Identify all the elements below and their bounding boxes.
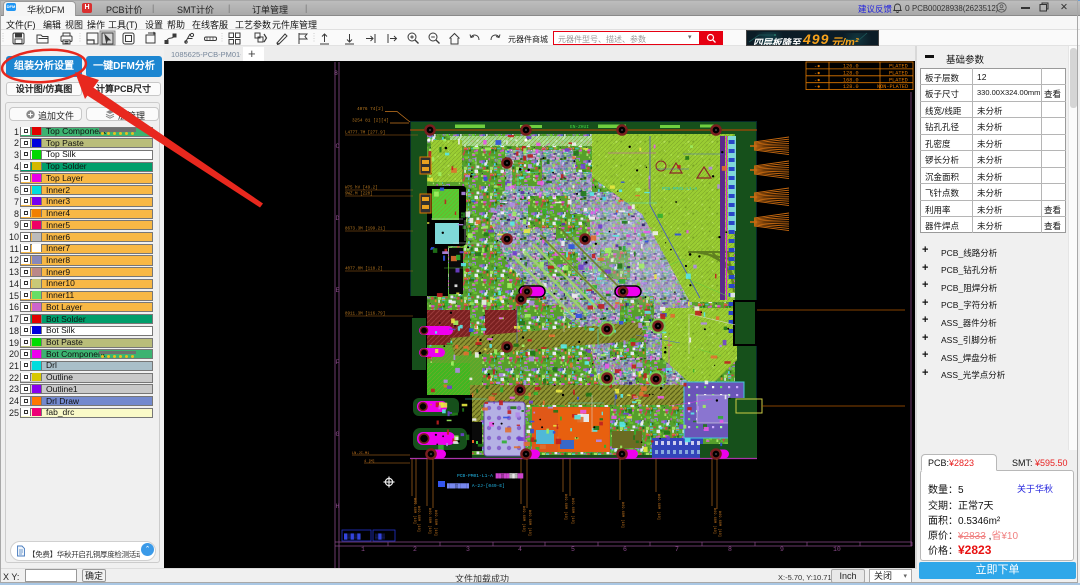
svg-text:EN-ZHUI: EN-ZHUI — [570, 124, 589, 130]
svg-text:7: 7 — [675, 546, 679, 553]
svg-text:W49.60M [10]: W49.60M [10] — [712, 508, 717, 534]
svg-text:4076 74[2]: 4076 74[2] — [357, 107, 383, 112]
svg-text:W49.60M [10]: W49.60M [10] — [563, 494, 568, 520]
svg-text:-●: -● — [814, 77, 820, 83]
svg-text:3: 3 — [466, 546, 470, 553]
svg-text:███▓████ A-2J-[049-E]: ███▓████ A-2J-[049-E] — [447, 483, 505, 489]
svg-text:8: 8 — [334, 70, 338, 77]
svg-text:126.0: 126.0 — [843, 64, 859, 70]
svg-text:-●: -● — [814, 70, 820, 76]
svg-text:E: E — [336, 287, 340, 294]
svg-text:2: 2 — [413, 546, 417, 553]
svg-text:1: 1 — [361, 546, 365, 553]
svg-text:W49.60M [10]: W49.60M [10] — [427, 508, 432, 534]
svg-text:▒█▒: ▒█▒ — [375, 533, 386, 540]
svg-text:8: 8 — [728, 546, 732, 553]
svg-text:5: 5 — [571, 546, 575, 553]
svg-text:PLATED: PLATED — [889, 77, 908, 83]
svg-text:9: 9 — [780, 546, 784, 553]
svg-text:C: C — [336, 143, 340, 150]
svg-text:10: 10 — [833, 546, 841, 553]
svg-text:128.0: 128.0 — [843, 70, 859, 76]
svg-text:168.0: 168.0 — [843, 77, 859, 83]
svg-text:G: G — [336, 431, 340, 438]
svg-text:F: F — [336, 359, 340, 366]
svg-text:W49.60M [10]: W49.60M [10] — [656, 494, 661, 520]
svg-text:PLATED: PLATED — [889, 64, 908, 70]
svg-text:PLATED: PLATED — [889, 70, 908, 76]
svg-text:NON-PLATED: NON-PLATED — [877, 84, 908, 90]
svg-text:128.0: 128.0 — [843, 84, 859, 90]
svg-text:-●: -● — [814, 84, 820, 90]
svg-text:D: D — [336, 215, 340, 222]
svg-text:6: 6 — [623, 546, 627, 553]
svg-text:LN-JC-M1: LN-JC-M1 — [352, 452, 369, 456]
svg-text:PCB-PM01-L1-A ██▓██▓█▓██: PCB-PM01-L1-A ██▓██▓█▓██ — [457, 473, 523, 479]
svg-text:W49.60M [10]: W49.60M [10] — [521, 506, 526, 532]
svg-text:W49.60M [10]: W49.60M [10] — [416, 506, 421, 532]
svg-text:-●: -● — [814, 64, 820, 70]
svg-text:W49.60M [10]: W49.60M [10] — [570, 498, 575, 524]
svg-text:PCB-PM01-L1-A: PCB-PM01-L1-A — [662, 186, 697, 192]
svg-text:3254 81 [2][4]: 3254 81 [2][4] — [352, 119, 389, 124]
svg-text:W49.60M [10]: W49.60M [10] — [717, 511, 722, 537]
svg-text:W49.60M [10]: W49.60M [10] — [433, 510, 438, 536]
svg-text:4: 4 — [518, 546, 522, 553]
svg-text:W49.60M [10]: W49.60M [10] — [527, 510, 532, 536]
svg-text:█▒█▒█: █▒█▒█ — [344, 533, 361, 540]
svg-text:H: H — [336, 503, 340, 510]
svg-text:W49.60M [10]: W49.60M [10] — [620, 502, 625, 528]
